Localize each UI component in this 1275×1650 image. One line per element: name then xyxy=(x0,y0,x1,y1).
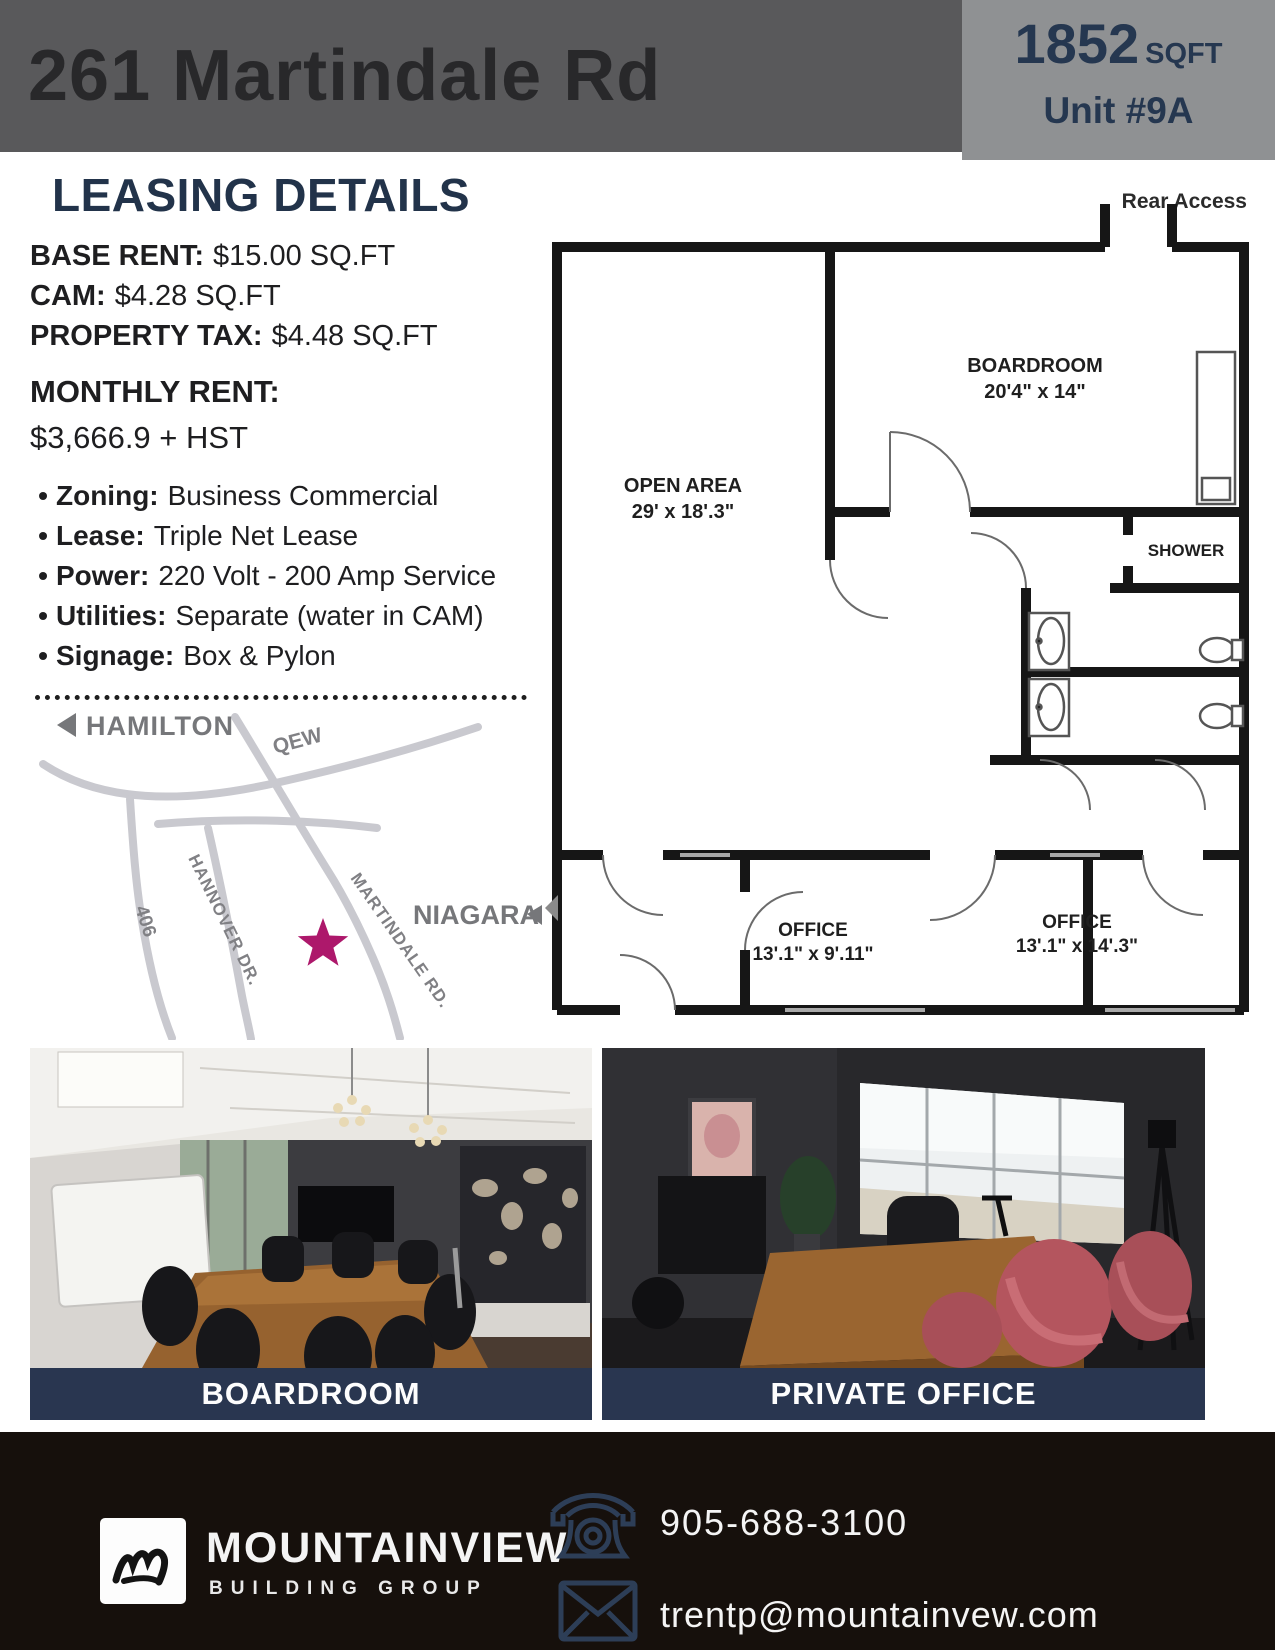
mountainview-logo xyxy=(100,1518,186,1604)
list-item-utilities: •Utilities:Separate (water in CAM) xyxy=(30,596,535,636)
logo-m-icon xyxy=(100,1518,186,1604)
office1-dims: 13'.1" x 9'.11" xyxy=(752,944,873,965)
map-label-406: 406 xyxy=(130,903,160,940)
floor-plan: Rear Access xyxy=(545,192,1257,1022)
property-address: 261 Martindale Rd xyxy=(28,0,661,152)
brand-subtitle: BUILDING GROUP xyxy=(209,1578,488,1600)
leasing-details-section: LEASING DETAILS BASE RENT:$15.00 SQ.FT C… xyxy=(30,168,535,676)
office2-dims: 13'.1" x 14'.3" xyxy=(1016,936,1138,957)
shower-label: SHOWER xyxy=(1148,541,1225,560)
monthly-rent-value: $3,666.9 + HST xyxy=(30,418,535,458)
base-rent-value: $15.00 SQ.FT xyxy=(213,240,395,272)
envelope-icon xyxy=(558,1580,638,1642)
map-label-hamilton: HAMILTON xyxy=(86,711,234,741)
floorplan-walls xyxy=(557,204,1244,1012)
phone-number: 905-688-3100 xyxy=(660,1502,908,1544)
list-item-power: •Power:220 Volt - 200 Amp Service xyxy=(30,556,535,596)
map-roads xyxy=(43,717,478,1039)
open-area-label: OPEN AREA xyxy=(624,475,742,497)
unit-number: Unit #9A xyxy=(962,87,1275,135)
property-tax-label: PROPERTY TAX: xyxy=(30,320,263,352)
boardroom-caption: BOARDROOM xyxy=(30,1368,592,1420)
property-tax-value: $4.48 SQ.FT xyxy=(272,320,438,352)
office1-label: OFFICE xyxy=(778,920,848,941)
base-rent-line: BASE RENT:$15.00 SQ.FT xyxy=(30,236,535,276)
boardroom-label: BOARDROOM xyxy=(967,355,1103,377)
office2-label: OFFICE xyxy=(1042,912,1112,933)
brand-name: MOUNTAINVIEW xyxy=(206,1524,568,1573)
boardroom-dims: 20'4" x 14" xyxy=(984,381,1086,403)
open-area-dims: 29' x 18'.3" xyxy=(632,501,734,523)
boardroom-photo-image xyxy=(30,1048,592,1368)
entrance-arrow-icon xyxy=(545,895,558,921)
footer: MOUNTAINVIEW BUILDING GROUP 905-688-3100… xyxy=(0,1432,1275,1650)
private-office-caption: PRIVATE OFFICE xyxy=(602,1368,1205,1420)
section-title: LEASING DETAILS xyxy=(52,168,535,222)
floorplan-windows xyxy=(680,855,1235,1010)
phone-icon xyxy=(545,1484,641,1564)
map-label-niagara: NIAGARA xyxy=(413,900,539,930)
boardroom-photo: BOARDROOM xyxy=(30,1048,592,1420)
sqft-label: SQFT xyxy=(1145,38,1222,70)
private-office-photo-image xyxy=(602,1048,1205,1368)
map-label-qew: QEW xyxy=(270,724,325,759)
cam-value: $4.28 SQ.FT xyxy=(115,280,281,312)
property-tax-line: PROPERTY TAX:$4.48 SQ.FT xyxy=(30,316,535,356)
cam-line: CAM:$4.28 SQ.FT xyxy=(30,276,535,316)
sqft-value: 1852 xyxy=(1015,12,1140,75)
feature-list: •Zoning:Business Commercial •Lease:Tripl… xyxy=(30,476,535,676)
dotted-divider xyxy=(35,695,527,700)
unit-size-box: 1852SQFT Unit #9A xyxy=(962,0,1275,160)
rear-access-label: Rear Access xyxy=(1122,192,1247,213)
list-item-lease: •Lease:Triple Net Lease xyxy=(30,516,535,556)
location-map: HAMILTON QEW 406 HANNOVER DR. MARTINDALE… xyxy=(30,706,542,1040)
list-item-zoning: •Zoning:Business Commercial xyxy=(30,476,535,516)
map-label-hannover: HANNOVER DR. xyxy=(184,851,264,988)
list-item-signage: •Signage:Box & Pylon xyxy=(30,636,535,676)
sqft-row: 1852SQFT xyxy=(962,16,1275,87)
arrow-left-icon xyxy=(57,713,76,737)
leasing-flyer-page: 261 Martindale Rd 1852SQFT Unit #9A LEAS… xyxy=(0,0,1275,1650)
contact-email: trentp@mountainvew.com xyxy=(660,1594,1099,1636)
cam-label: CAM: xyxy=(30,280,106,312)
base-rent-label: BASE RENT: xyxy=(30,240,204,272)
private-office-photo: PRIVATE OFFICE xyxy=(602,1048,1205,1420)
monthly-rent-label: MONTHLY RENT: xyxy=(30,372,535,412)
location-star-icon xyxy=(298,918,348,966)
